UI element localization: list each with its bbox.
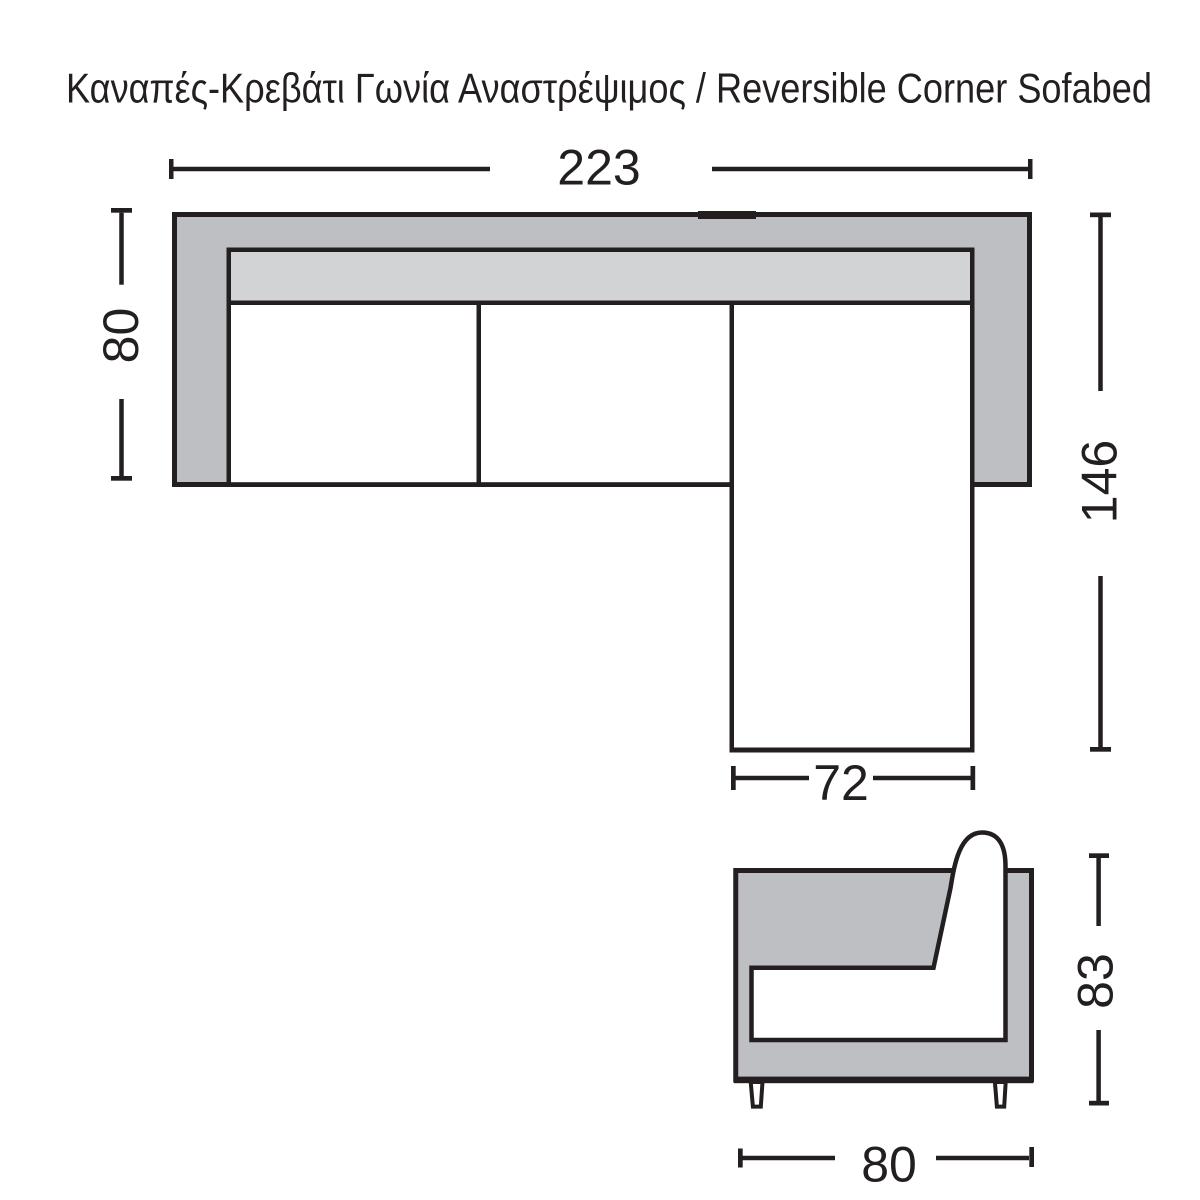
svg-text:80: 80 [861,1137,917,1193]
svg-text:72: 72 [813,755,869,811]
svg-text:80: 80 [93,308,149,364]
svg-text:223: 223 [557,140,640,196]
svg-text:146: 146 [1072,440,1128,523]
svg-text:Καναπές-Κρεβάτι Γωνία Αναστρέψ: Καναπές-Κρεβάτι Γωνία Αναστρέψιμος / Rev… [66,65,1152,112]
svg-text:83: 83 [1068,953,1124,1009]
